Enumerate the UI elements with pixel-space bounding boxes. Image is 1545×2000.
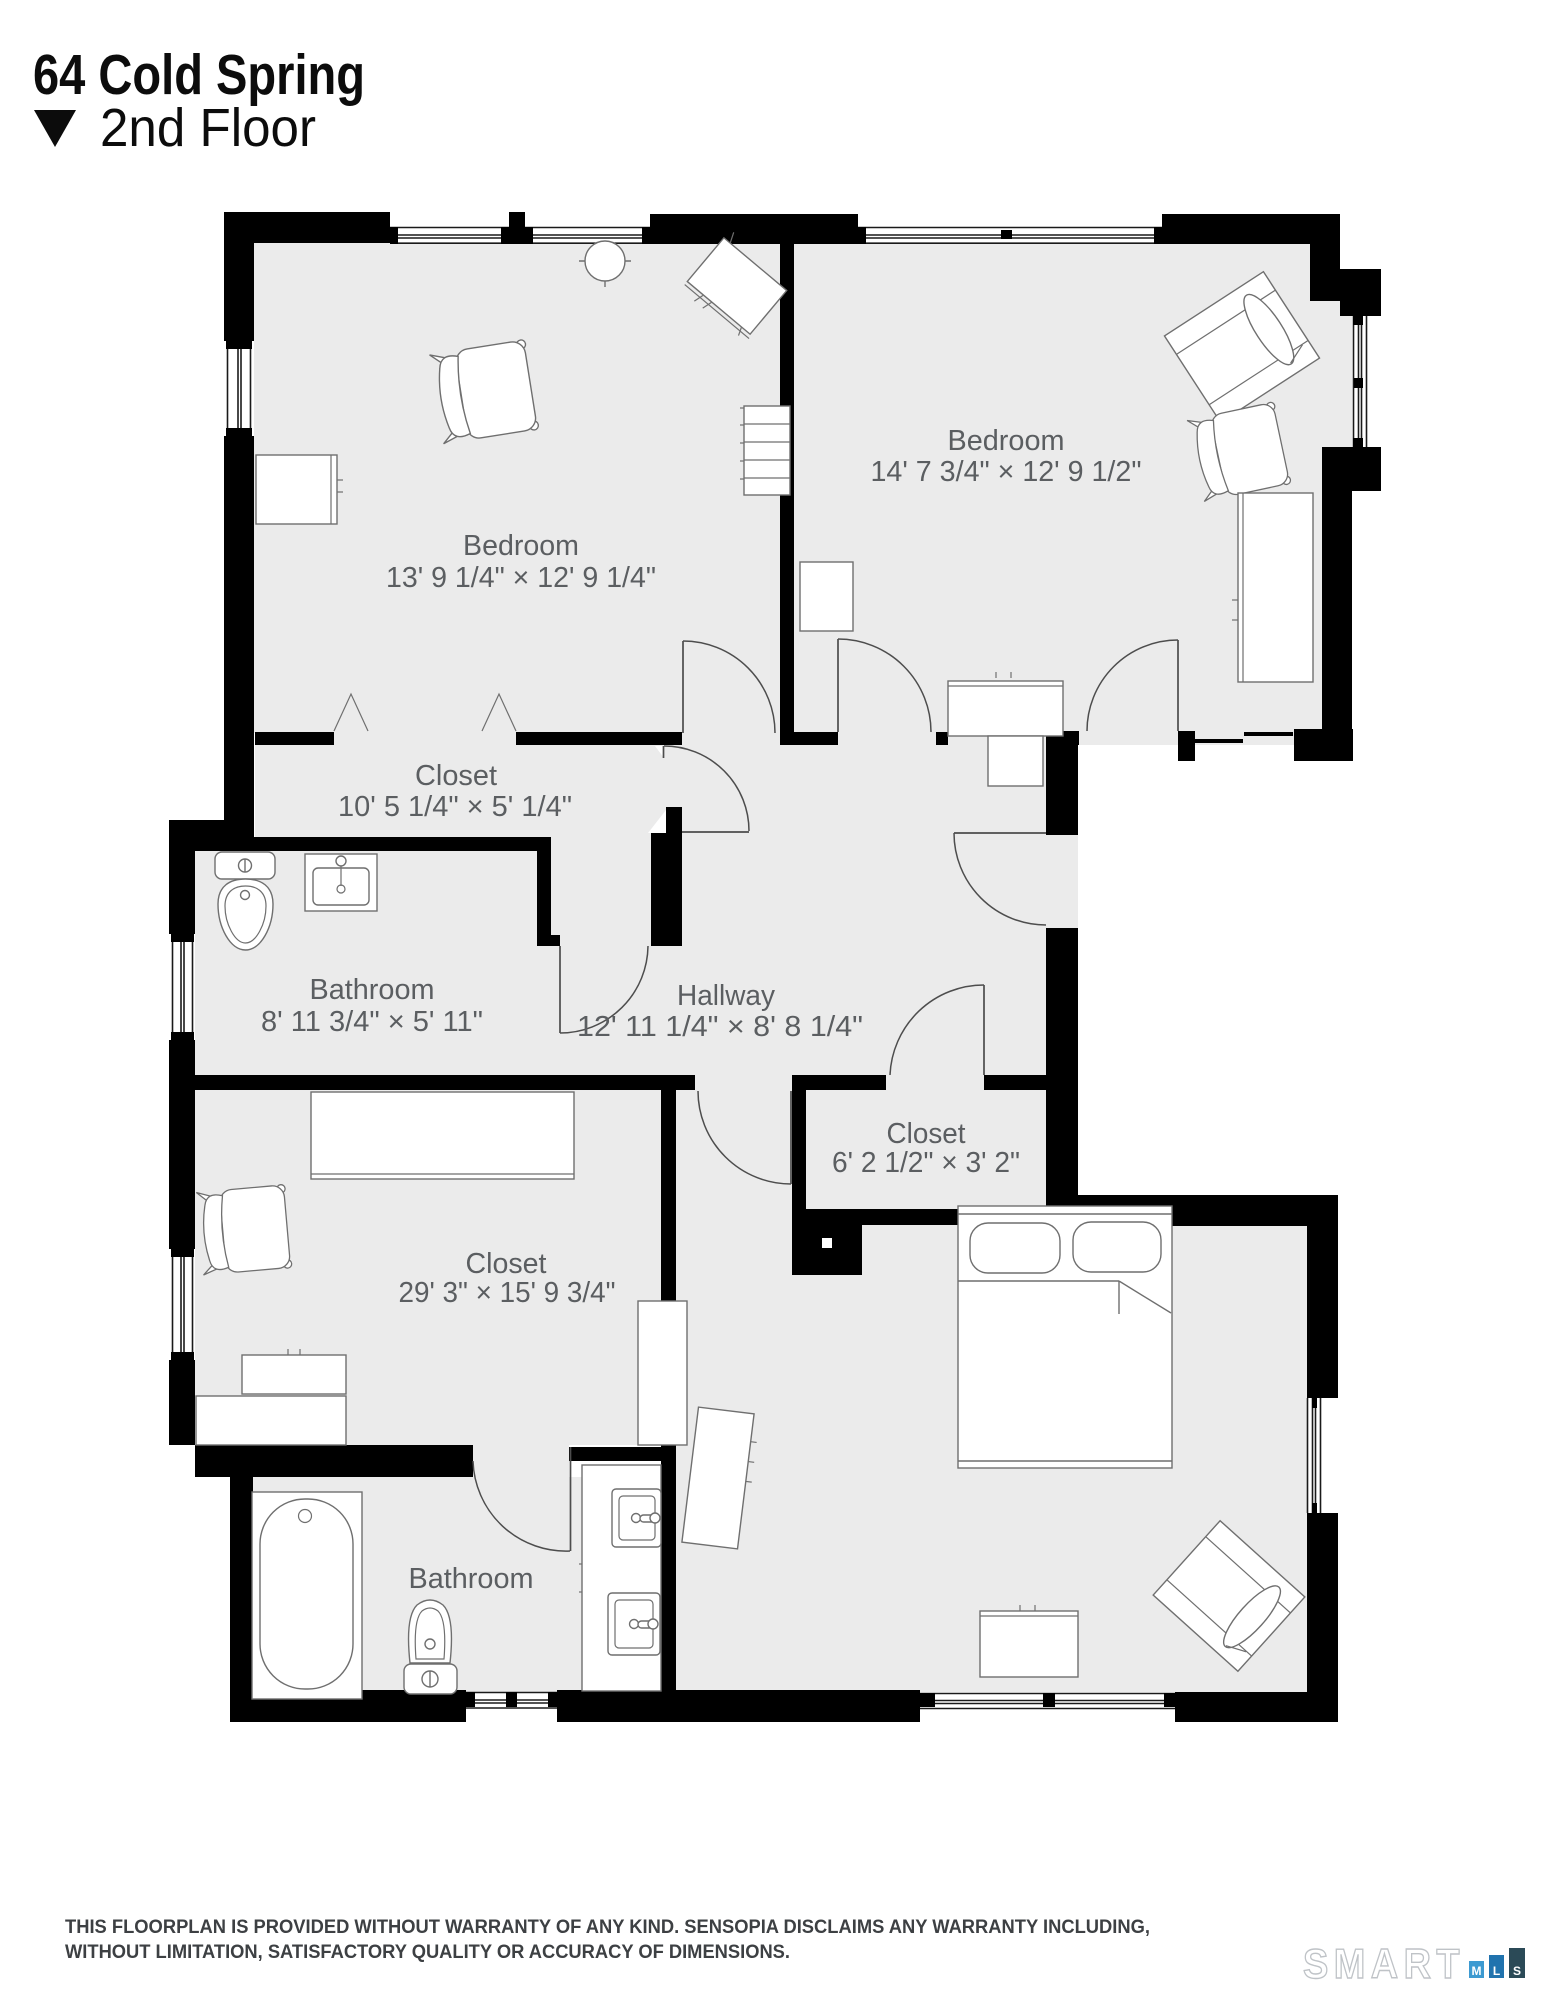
svg-text:2nd Floor: 2nd Floor (100, 98, 316, 158)
svg-text:13' 9 1/4" × 12' 9 1/4": 13' 9 1/4" × 12' 9 1/4" (386, 562, 656, 594)
svg-text:Closet: Closet (415, 760, 497, 792)
svg-text:Closet: Closet (466, 1248, 547, 1280)
svg-text:WITHOUT LIMITATION, SATISFACTO: WITHOUT LIMITATION, SATISFACTORY QUALITY… (65, 1942, 790, 1963)
svg-text:THIS FLOORPLAN IS PROVIDED WIT: THIS FLOORPLAN IS PROVIDED WITHOUT WARRA… (65, 1917, 1150, 1938)
svg-text:Bedroom: Bedroom (463, 530, 579, 562)
svg-text:6' 2 1/2" × 3' 2": 6' 2 1/2" × 3' 2" (832, 1147, 1020, 1179)
svg-text:10' 5 1/4" × 5' 1/4": 10' 5 1/4" × 5' 1/4" (338, 791, 572, 823)
svg-text:L: L (1493, 1964, 1500, 1978)
svg-text:Hallway: Hallway (677, 980, 775, 1012)
svg-text:14' 7 3/4" × 12' 9 1/2": 14' 7 3/4" × 12' 9 1/2" (871, 456, 1142, 488)
svg-text:SMART: SMART (1303, 1940, 1465, 1987)
svg-text:12' 11 1/4" × 8' 8 1/4": 12' 11 1/4" × 8' 8 1/4" (577, 1011, 863, 1043)
svg-text:S: S (1513, 1964, 1521, 1978)
svg-text:M: M (1472, 1964, 1482, 1978)
svg-text:Bathroom: Bathroom (409, 1563, 534, 1595)
svg-text:Bathroom: Bathroom (310, 974, 435, 1006)
svg-text:8' 11 3/4" × 5' 11": 8' 11 3/4" × 5' 11" (261, 1006, 483, 1038)
svg-text:Closet: Closet (887, 1118, 966, 1150)
svg-text:29' 3" × 15' 9 3/4": 29' 3" × 15' 9 3/4" (399, 1277, 616, 1309)
svg-text:Bedroom: Bedroom (948, 425, 1065, 457)
